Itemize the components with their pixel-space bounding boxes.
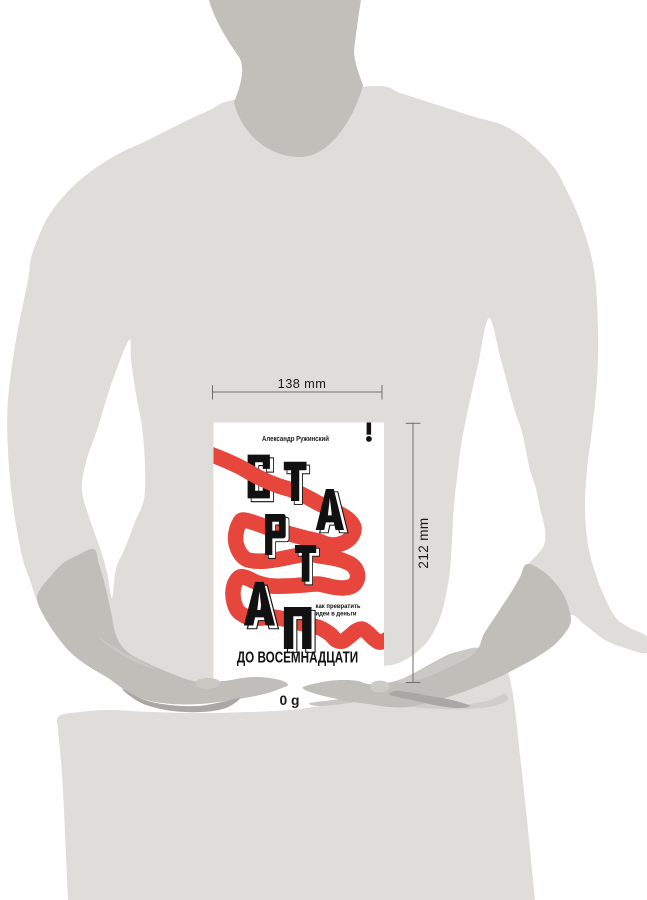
svg-text:212 mm: 212 mm xyxy=(416,517,431,568)
svg-text:0 g: 0 g xyxy=(280,693,300,708)
svg-text:Александр Ружинский: Александр Ружинский xyxy=(262,435,329,443)
svg-text:ДО ВОСЕМНАДЦАТИ: ДО ВОСЕМНАДЦАТИ xyxy=(237,648,358,666)
svg-text:как превратить: как превратить xyxy=(316,603,361,610)
svg-text:138 mm: 138 mm xyxy=(278,376,327,391)
svg-text:идеи в деньги: идеи в деньги xyxy=(316,611,357,618)
